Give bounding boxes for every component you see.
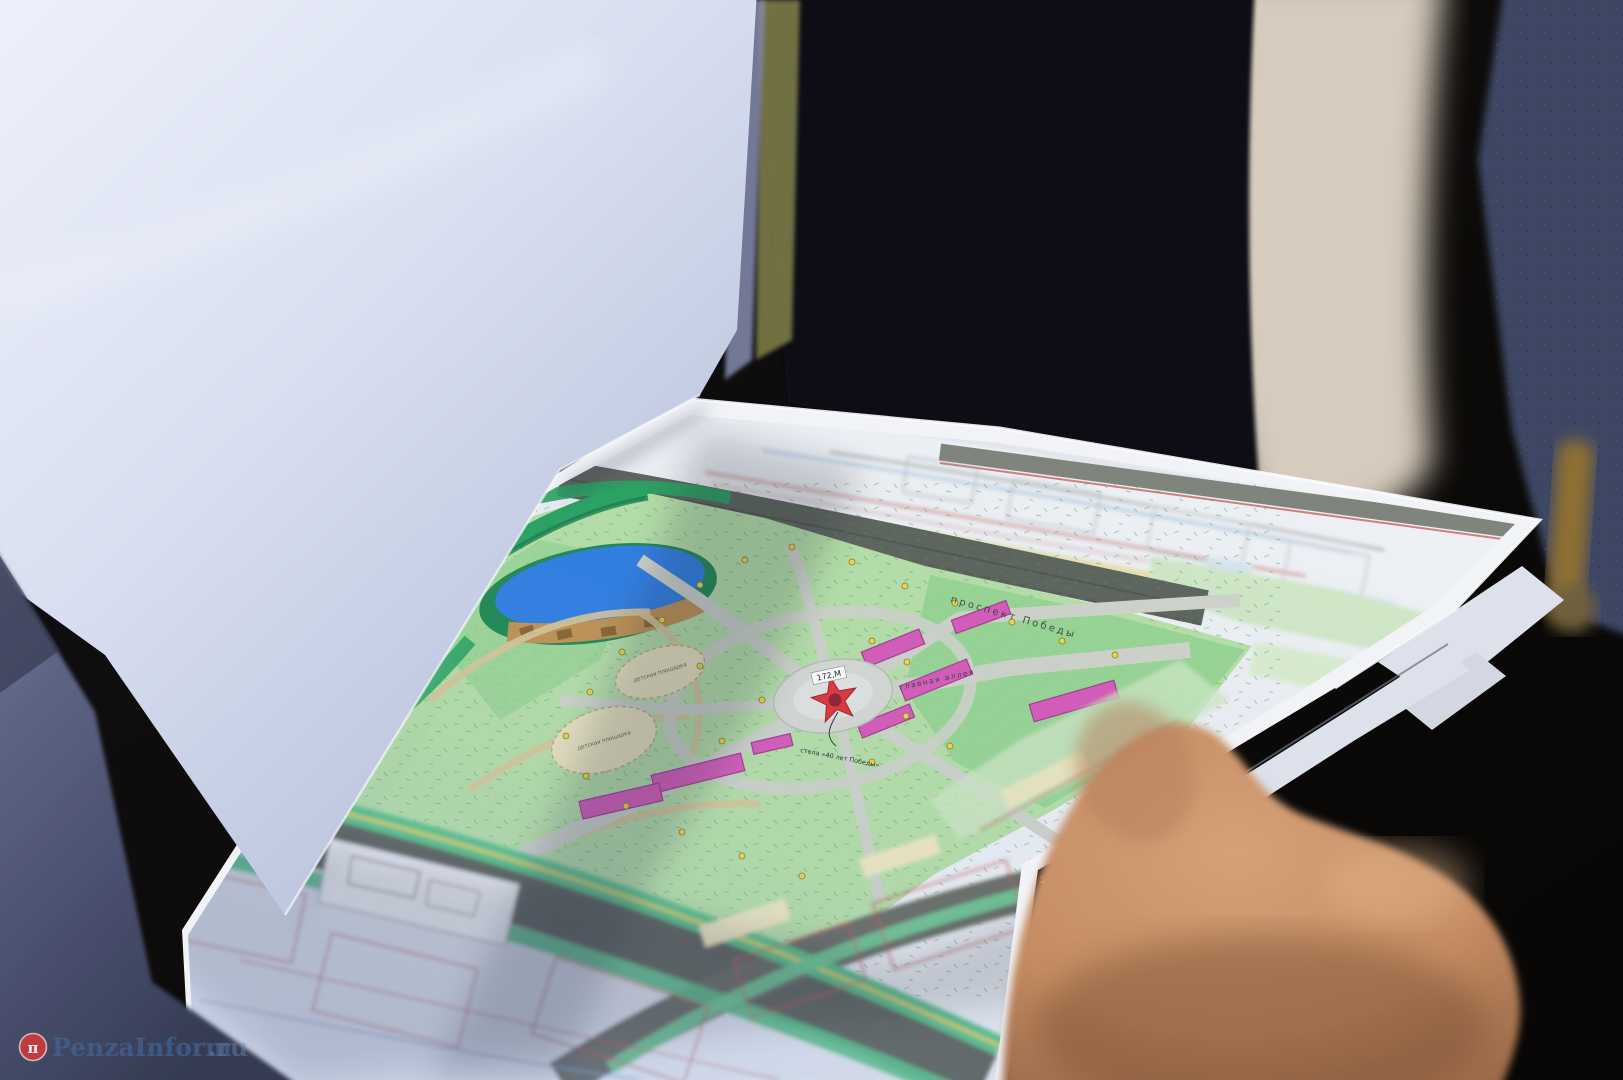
watermark-tld: .ru xyxy=(208,1033,248,1062)
bokeh-highlight xyxy=(1548,584,1596,632)
knuckle-highlight xyxy=(1326,844,1470,924)
photo-canvas: детская площадка детская площадка 172,М xyxy=(0,0,1623,1080)
watermark: π PenzaInform .ru xyxy=(20,1033,249,1062)
watermark-logo-glyph: π xyxy=(28,1039,39,1057)
photo-scene: детская площадка детская площадка 172,М xyxy=(0,0,1623,1080)
watermark-name: PenzaInform xyxy=(52,1033,232,1062)
